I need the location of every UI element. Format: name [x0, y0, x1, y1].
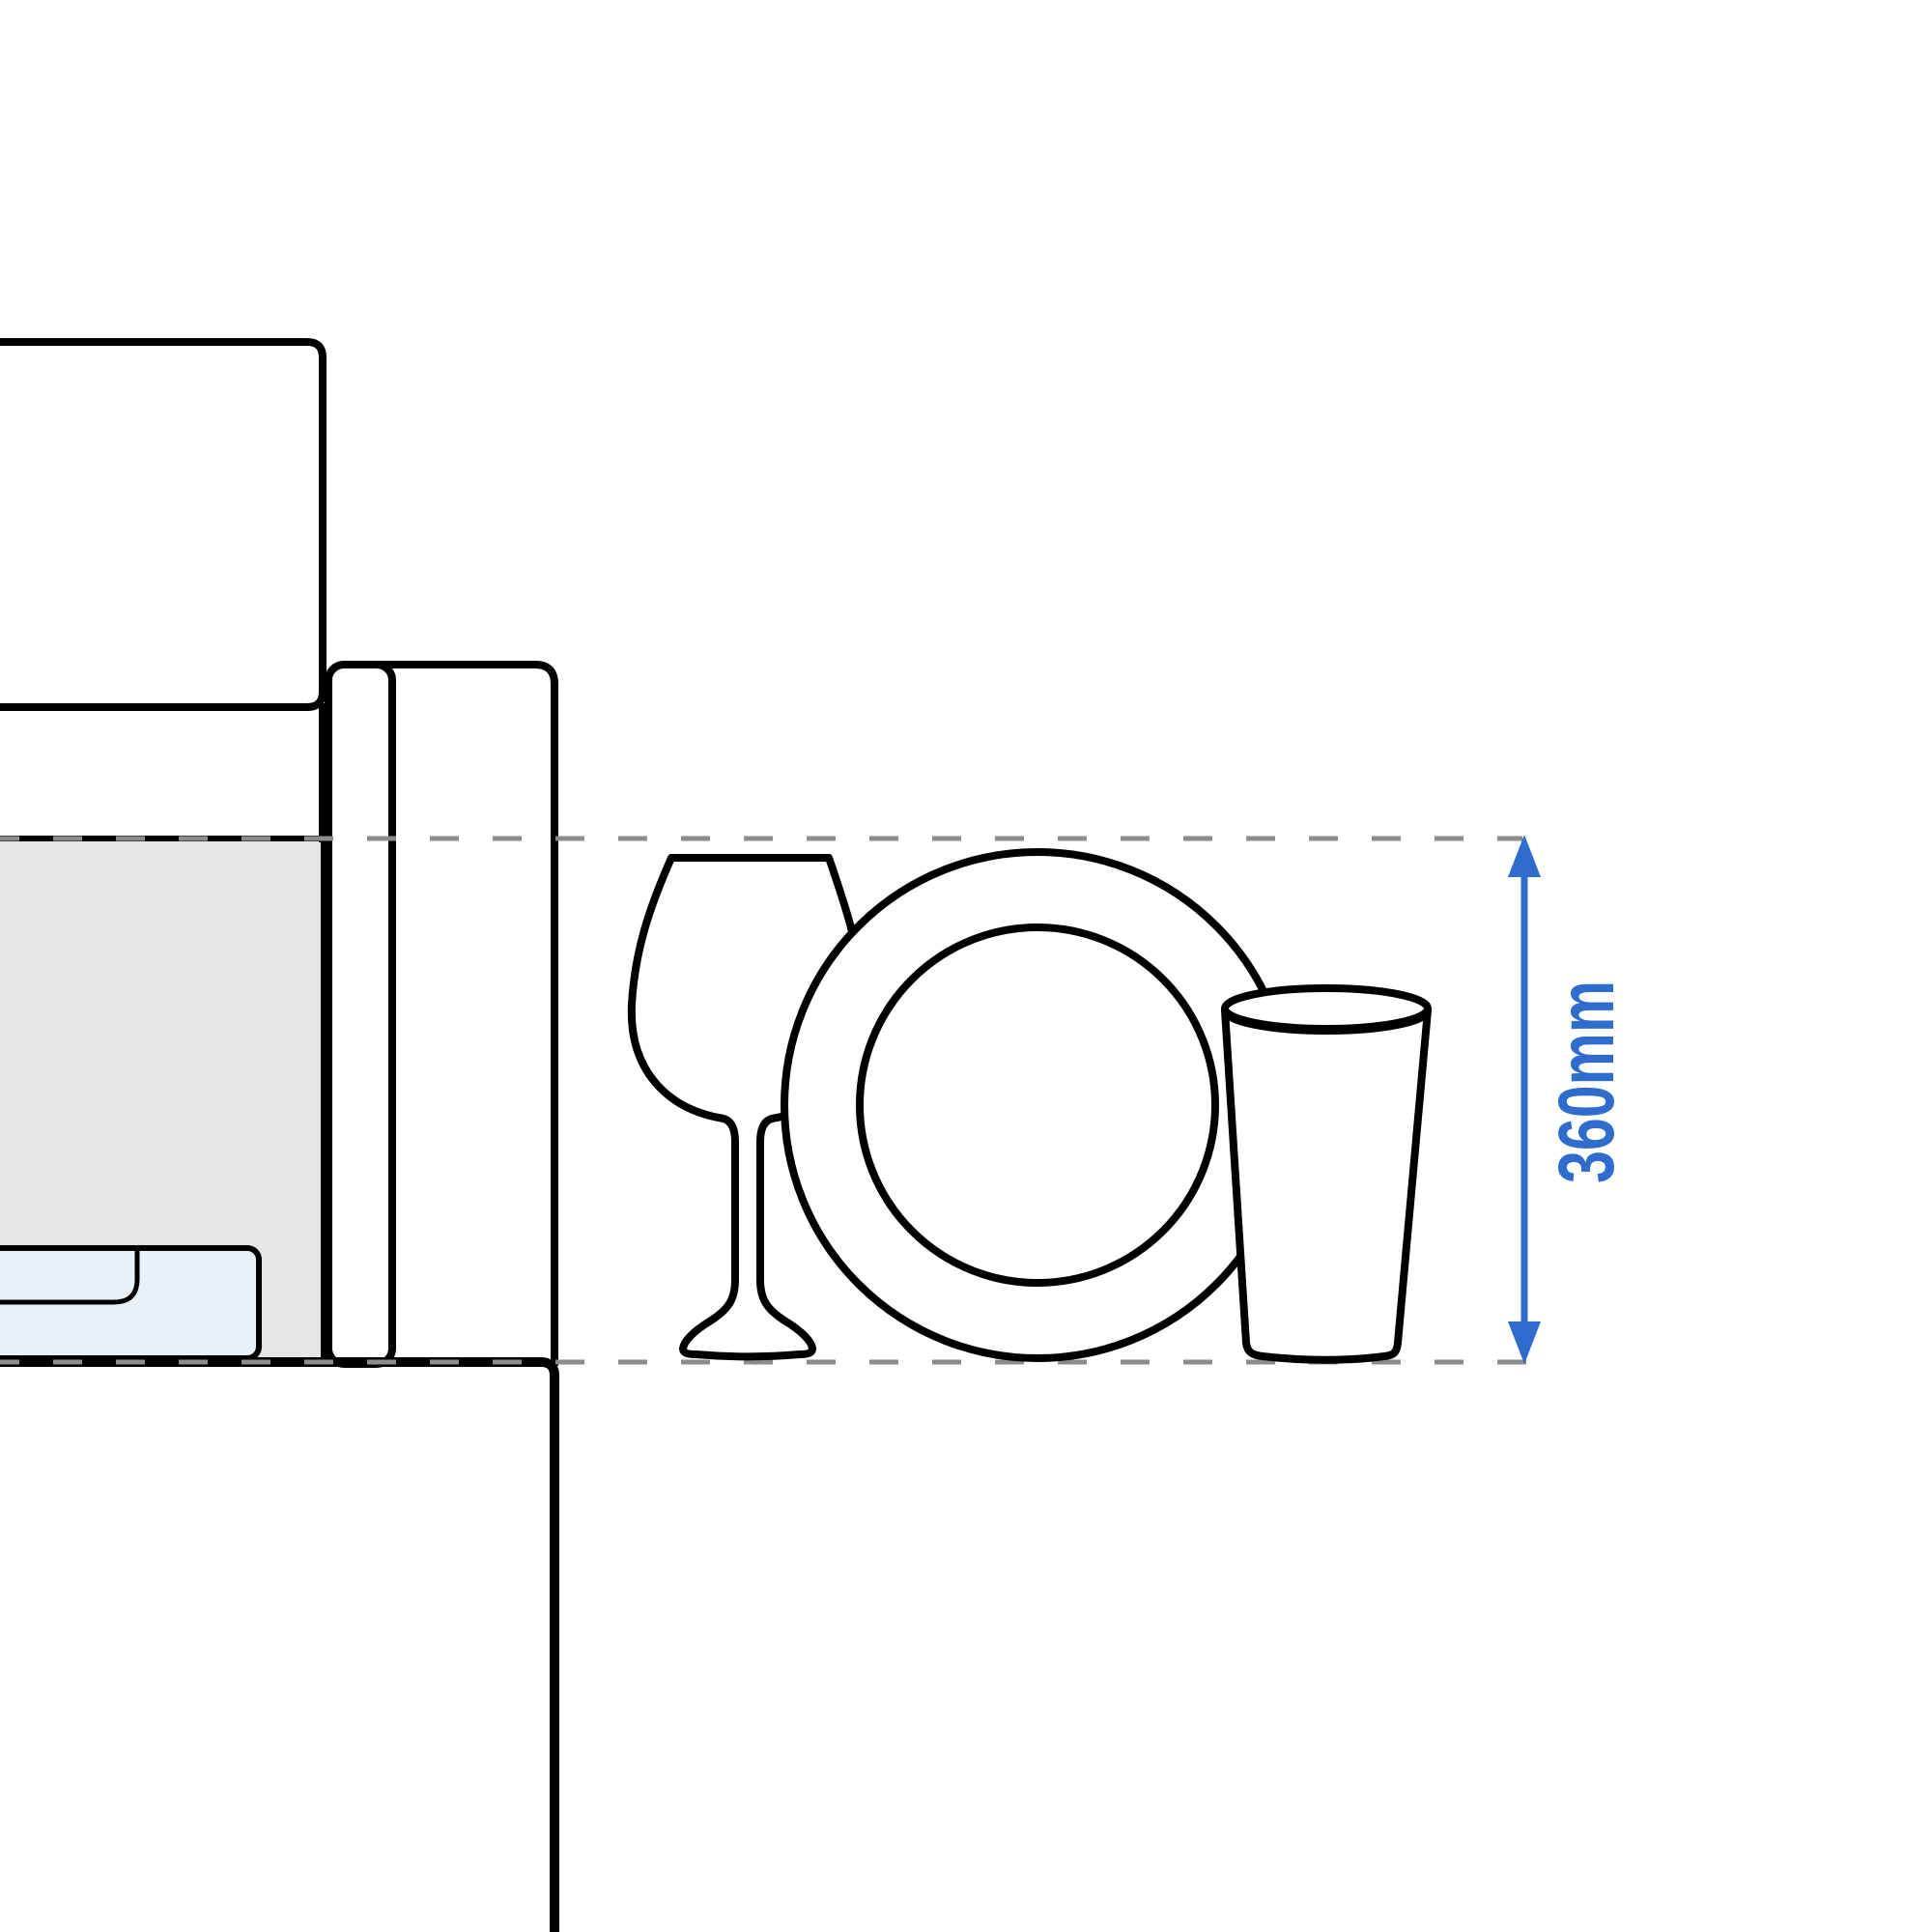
tumbler-body [1225, 1010, 1428, 1360]
tumbler-icon [1225, 988, 1428, 1360]
dimension-arrowhead-down [1508, 1321, 1541, 1364]
clearance-diagram: 360mm [0, 0, 1932, 1932]
tumbler-rim [1225, 988, 1428, 1029]
diagram-canvas: 360mm [0, 0, 1932, 1932]
plate-icon [784, 852, 1291, 1358]
door-inner-liner [328, 665, 392, 1364]
upper-cabinet [0, 342, 323, 842]
door-panel [328, 665, 554, 1366]
pull-out-tray [0, 1248, 259, 1358]
dimension-arrowhead-up [1508, 835, 1541, 877]
plinth-line [0, 1362, 554, 1932]
dimension-arrow [1508, 835, 1541, 1364]
upper-cabinet-outline [0, 342, 323, 707]
dimension-label: 360mm [1543, 980, 1631, 1183]
